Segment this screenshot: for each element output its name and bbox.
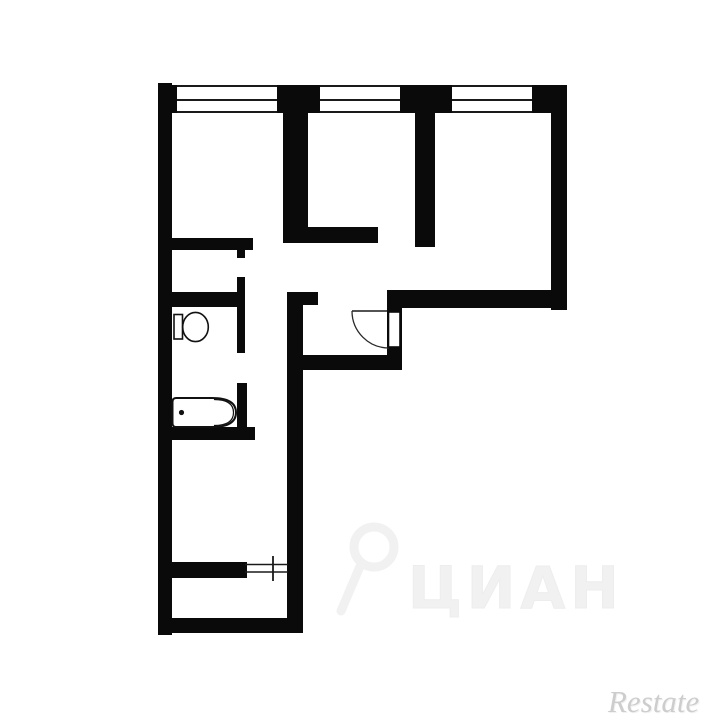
entry-swing-door: [352, 311, 400, 348]
wall-closet-right: [237, 277, 245, 353]
wall-bathroom-right: [237, 383, 247, 427]
apartment-floor-plan: ЦИАН Restate: [0, 0, 725, 725]
top-wall-pier-2: [277, 85, 320, 113]
door-leaf: [389, 312, 401, 347]
top-wall-pier-3: [400, 85, 452, 113]
corridor-doorway-symbol: [245, 556, 288, 581]
wall-hall-bottom: [287, 355, 402, 370]
wall-bathroom-bottom: [168, 427, 255, 440]
wall-closet-stub: [237, 250, 245, 258]
wall-hall-vertical: [287, 292, 303, 623]
window-2-line-1: [320, 85, 400, 87]
toilet-tank: [174, 315, 183, 340]
window-3-line-3: [452, 111, 532, 113]
window-3-line-2: [452, 99, 532, 101]
outer-wall-bottom: [158, 618, 303, 633]
toilet-bowl: [183, 312, 209, 341]
outer-wall-right-section-bottom: [387, 290, 567, 308]
wall-bathroom-top: [169, 292, 245, 307]
wall-room2-room3: [415, 113, 435, 247]
wall-room1-room2: [283, 113, 308, 243]
door-swing-arc: [352, 311, 389, 348]
bathtub-faucet: [179, 410, 184, 415]
window-3-line-1: [452, 85, 532, 87]
window-1-line-2: [177, 99, 277, 101]
outer-wall-left: [158, 83, 172, 635]
wall-hall-vertical-stub: [303, 292, 318, 305]
top-wall-pier-1: [158, 85, 177, 113]
wall-lower-divider: [170, 562, 247, 578]
window-1-line-1: [177, 85, 277, 87]
windows-layer: [177, 85, 532, 113]
wall-room2-bottom-arm: [283, 227, 378, 243]
watermark-pin-icon: [341, 527, 394, 611]
toilet: [174, 312, 208, 341]
window-1-line-3: [177, 111, 277, 113]
window-2-line-3: [320, 111, 400, 113]
pin-tail: [341, 564, 361, 611]
wall-room1-bottom: [169, 238, 253, 250]
watermark-cian-text: ЦИАН: [408, 558, 668, 624]
outer-wall-right: [551, 85, 567, 310]
window-2-line-2: [320, 99, 400, 101]
watermark-restate-text: Restate: [608, 682, 725, 724]
walls-layer: [158, 83, 567, 635]
bathtub: [173, 398, 237, 427]
